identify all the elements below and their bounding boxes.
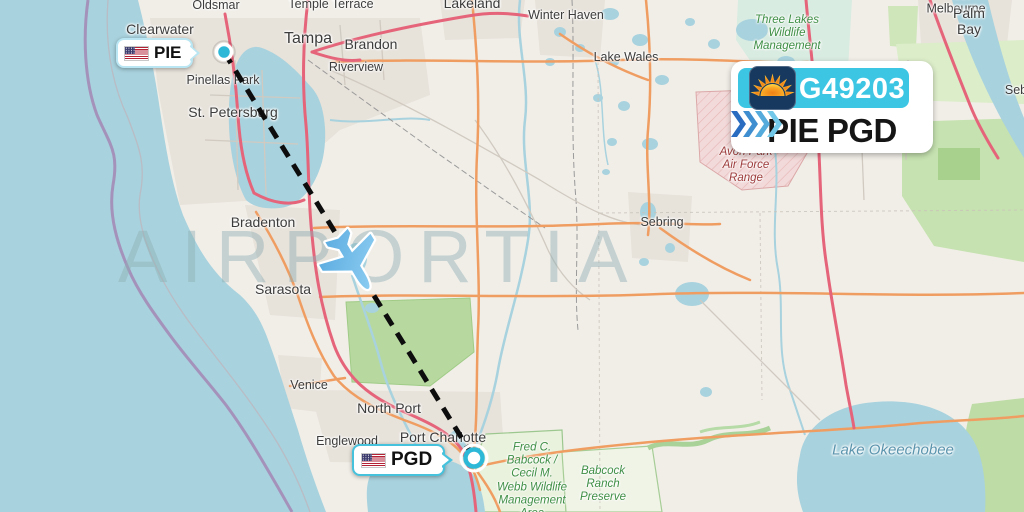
- destination-pill-code: PGD: [391, 449, 432, 471]
- route-codes-row: PIE PGD: [731, 111, 933, 151]
- us-flag-icon: [362, 454, 385, 467]
- origin-pill-code: PIE: [154, 43, 181, 63]
- destination-airport-pill[interactable]: PGD: [352, 444, 445, 476]
- sun-country-sun-icon: [749, 66, 796, 110]
- flight-info-card[interactable]: G49203 PIE PGD: [731, 61, 933, 153]
- flight-number: G49203: [797, 70, 907, 108]
- origin-airport-pill[interactable]: PIE: [116, 38, 193, 68]
- route-chevrons-icon: [731, 111, 783, 137]
- destination-code: PGD: [827, 112, 897, 150]
- us-flag-icon: [125, 47, 148, 60]
- flight-route-map: AIRPORTIA Oldsmar Temple Terrace Lakelan…: [0, 0, 1024, 512]
- airline-logo: [749, 66, 796, 110]
